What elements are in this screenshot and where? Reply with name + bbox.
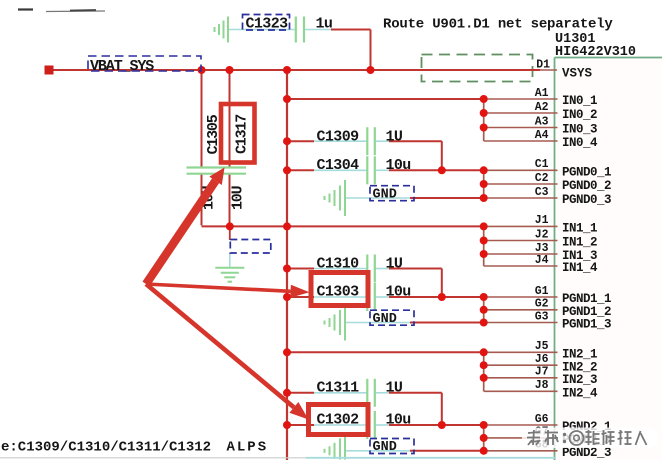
svg-text:C1310: C1310 <box>317 255 360 272</box>
svg-text:10U: 10U <box>230 185 247 210</box>
svg-text:C1303: C1303 <box>317 284 360 301</box>
svg-text:IN0_3: IN0_3 <box>562 123 597 137</box>
svg-text:C1: C1 <box>535 158 549 171</box>
svg-text:IN1_4: IN1_4 <box>562 261 598 275</box>
svg-text:A4: A4 <box>535 129 549 142</box>
svg-text:J5: J5 <box>535 340 549 353</box>
svg-text:10u: 10u <box>386 284 411 301</box>
svg-text:Route U901.D1 net separately: Route U901.D1 net separately <box>383 17 613 33</box>
svg-text:G6: G6 <box>535 413 549 426</box>
svg-text:C2: C2 <box>535 172 549 185</box>
svg-text:J4: J4 <box>535 254 549 267</box>
svg-text:10u: 10u <box>386 157 411 174</box>
svg-text:IN0_4: IN0_4 <box>562 136 598 150</box>
svg-text:IN1_1: IN1_1 <box>562 222 597 236</box>
svg-text:1U: 1U <box>386 380 403 397</box>
svg-text:A2: A2 <box>535 101 549 114</box>
svg-text:C1304: C1304 <box>317 157 360 174</box>
svg-text:J8: J8 <box>535 379 549 392</box>
svg-text:G1: G1 <box>535 285 549 298</box>
svg-text:10u: 10u <box>386 411 411 428</box>
svg-text:A3: A3 <box>535 115 549 128</box>
svg-text:C1311: C1311 <box>317 380 360 397</box>
svg-text:PGND1_3: PGND1_3 <box>562 318 611 332</box>
svg-text:J7: J7 <box>535 366 549 379</box>
svg-text:IN1_2: IN1_2 <box>562 236 597 250</box>
svg-text:C1302: C1302 <box>317 411 360 428</box>
svg-text:J2: J2 <box>535 228 549 241</box>
svg-text:VSYS: VSYS <box>562 67 593 81</box>
svg-text:J6: J6 <box>535 353 549 366</box>
svg-text:C3: C3 <box>535 186 549 199</box>
svg-text:C1309: C1309 <box>317 128 360 145</box>
svg-text:G3: G3 <box>535 310 549 323</box>
svg-text:G2: G2 <box>535 298 549 311</box>
svg-text:1U: 1U <box>386 128 403 145</box>
svg-text:ALPS: ALPS <box>227 440 269 456</box>
svg-text:1u: 1u <box>316 16 333 33</box>
svg-text:C1317: C1317 <box>234 115 251 154</box>
svg-text:PGND0_2: PGND0_2 <box>562 179 611 193</box>
svg-text:e:C1309/C1310/C1311/C1312: e:C1309/C1310/C1311/C1312 <box>1 440 211 456</box>
svg-text:IN2_3: IN2_3 <box>562 373 597 387</box>
svg-text:PGND2_3: PGND2_3 <box>562 446 611 460</box>
svg-text:1U: 1U <box>386 255 403 272</box>
svg-text:PGND0_3: PGND0_3 <box>562 193 611 207</box>
svg-text:D1: D1 <box>536 59 550 72</box>
svg-text:IN0_2: IN0_2 <box>562 108 597 122</box>
svg-text:A1: A1 <box>535 87 549 100</box>
svg-text:IN2_1: IN2_1 <box>562 348 597 362</box>
svg-text:VBAT_SYS: VBAT_SYS <box>90 58 154 75</box>
svg-text:PGND0_1: PGND0_1 <box>562 166 611 180</box>
svg-text:J1: J1 <box>535 214 549 227</box>
svg-text:IN2_4: IN2_4 <box>562 387 598 401</box>
svg-text:IN0_1: IN0_1 <box>562 94 597 108</box>
svg-text:HI6422V310: HI6422V310 <box>555 45 636 60</box>
